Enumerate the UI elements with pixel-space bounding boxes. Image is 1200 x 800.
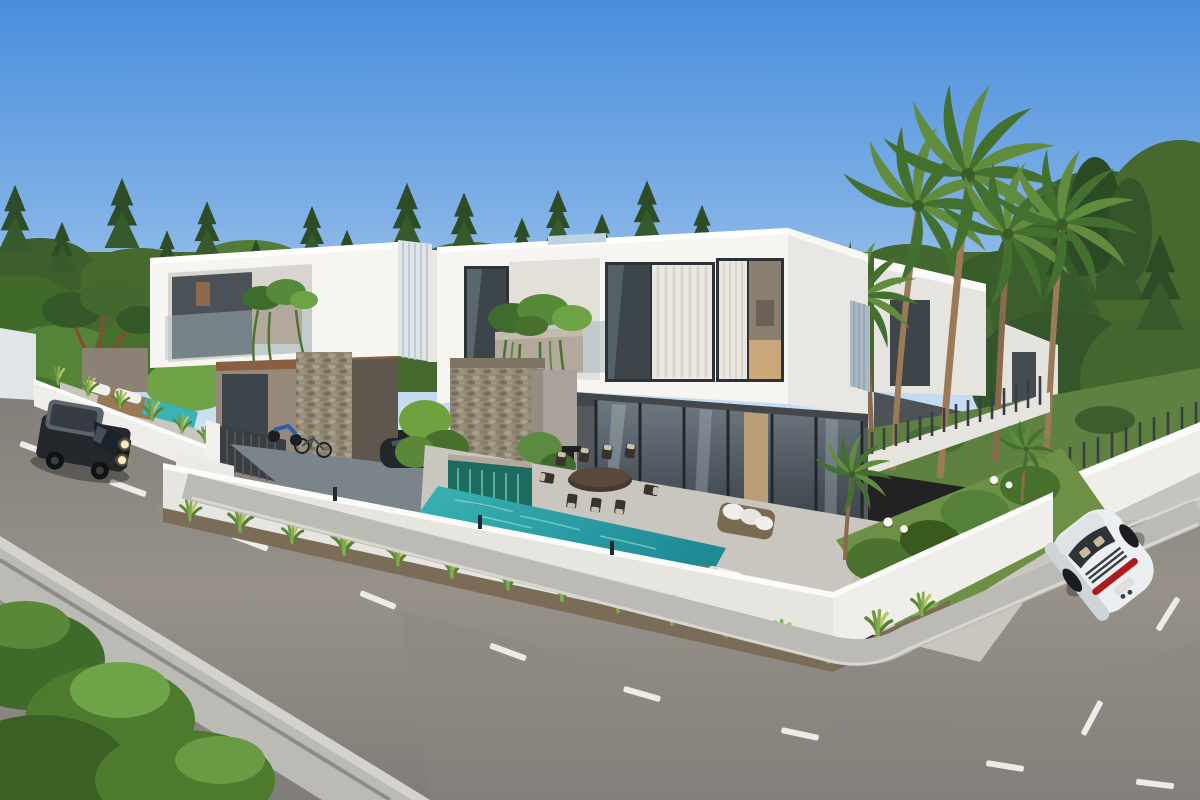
scene-canvas: 3D architectural rendering of a modern t…: [0, 0, 1200, 800]
neighbor-louver-wall: [0, 328, 36, 400]
curtain-folds: [658, 266, 706, 378]
side-louver-screen: [850, 300, 870, 392]
upper-window-3: [716, 258, 784, 382]
left-villa-stone-column: [296, 352, 352, 468]
upper-window-2: [605, 262, 715, 382]
architectural-render: 3D architectural rendering of a modern t…: [0, 0, 1200, 800]
balcony-planter: [252, 304, 302, 344]
balcony-chair: [196, 282, 210, 306]
